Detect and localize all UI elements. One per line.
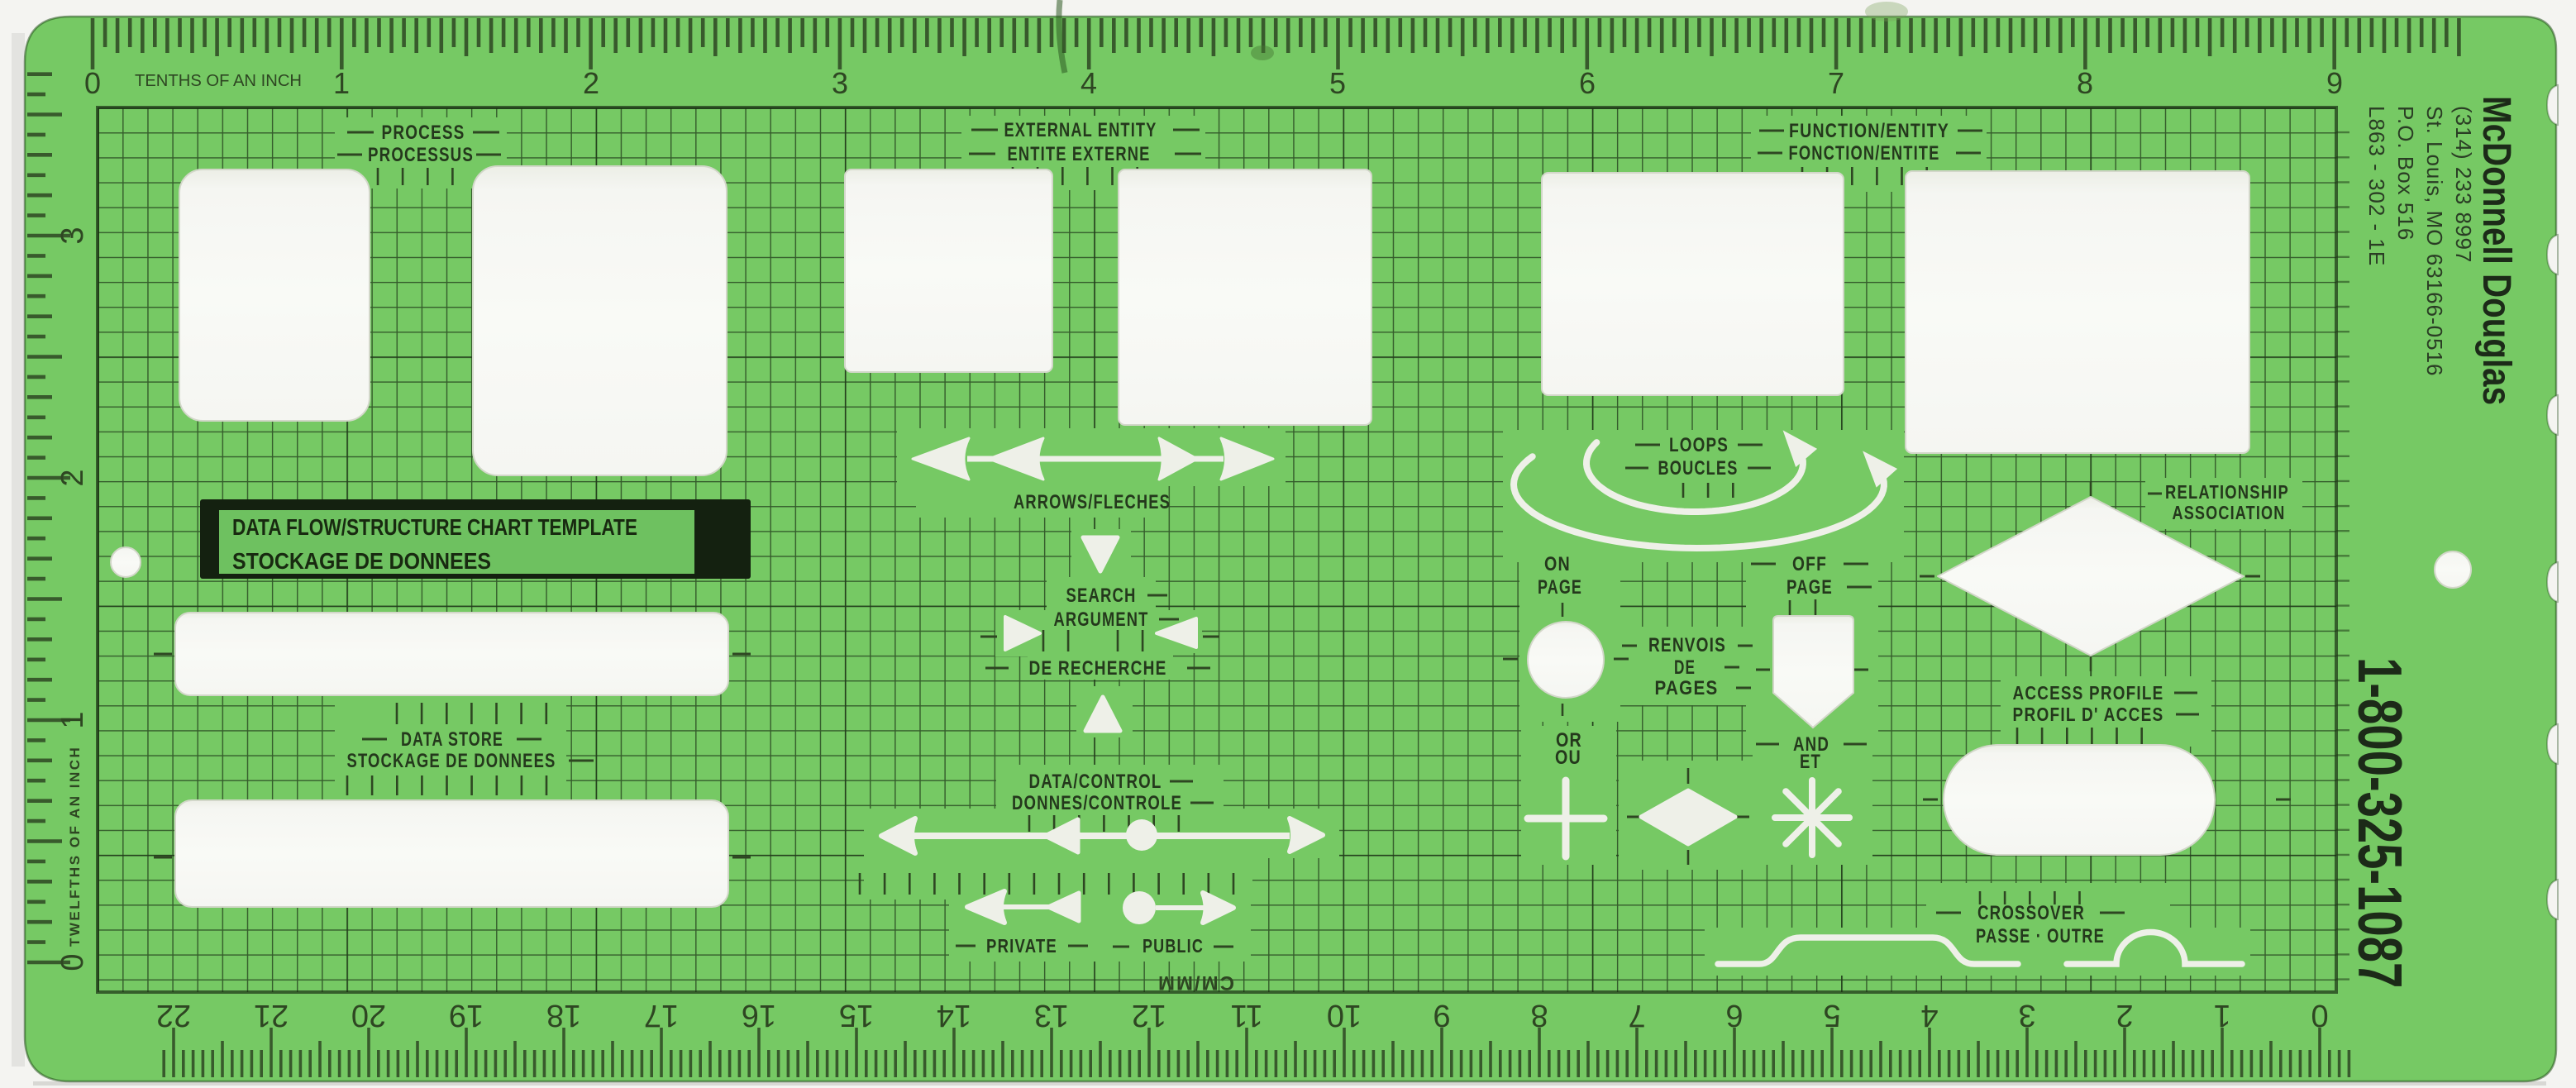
svg-text:19: 19 [449,998,484,1033]
svg-text:PROCESSUS: PROCESSUS [368,144,474,166]
svg-text:5: 5 [1823,998,1840,1033]
svg-text:FUNCTION/ENTITY: FUNCTION/ENTITY [1789,120,1949,142]
svg-text:(314) 233 8997: (314) 233 8997 [2451,106,2476,263]
svg-text:0: 0 [84,66,101,100]
svg-text:2: 2 [583,66,599,100]
svg-text:RENVOIS: RENVOIS [1648,634,1726,656]
svg-text:OFF: OFF [1792,553,1827,575]
svg-text:3: 3 [832,66,848,100]
svg-text:3: 3 [2018,998,2035,1033]
svg-text:ASSOCIATION: ASSOCIATION [2173,502,2286,523]
svg-text:6: 6 [1725,998,1743,1033]
svg-text:OU: OU [1555,747,1581,769]
svg-text:13: 13 [1034,998,1069,1033]
svg-text:St. Louis, MO 63166-0516: St. Louis, MO 63166-0516 [2422,106,2447,377]
svg-text:2: 2 [55,469,90,486]
svg-text:20: 20 [351,998,386,1033]
svg-text:ACCESS PROFILE: ACCESS PROFILE [2013,682,2164,704]
svg-text:CROSSOVER: CROSSOVER [1977,902,2085,924]
svg-text:0: 0 [2311,998,2328,1033]
svg-text:8: 8 [2077,66,2093,100]
svg-text:ARROWS/FLECHES: ARROWS/FLECHES [1014,491,1171,513]
svg-text:1-800-325-1087: 1-800-325-1087 [2345,657,2414,988]
svg-text:15: 15 [839,998,874,1033]
svg-text:6: 6 [1579,66,1596,100]
svg-text:3: 3 [55,227,90,244]
svg-text:PAGES: PAGES [1655,677,1719,699]
svg-text:2: 2 [2116,998,2133,1033]
svg-text:PRIVATE: PRIVATE [986,935,1057,957]
svg-text:LOOPS: LOOPS [1669,434,1729,456]
svg-text:7: 7 [1828,66,1844,100]
svg-text:4: 4 [1920,998,1938,1033]
svg-text:SEARCH: SEARCH [1066,585,1137,607]
svg-text:22: 22 [156,998,191,1033]
svg-text:17: 17 [644,998,679,1033]
svg-text:McDonnell Douglas: McDonnell Douglas [2474,96,2518,405]
svg-text:7: 7 [1628,998,1645,1033]
svg-text:ET: ET [1800,751,1821,773]
svg-text:14: 14 [937,998,971,1033]
svg-text:STOCKAGE DE DONNEES: STOCKAGE DE DONNEES [347,750,556,772]
svg-text:PROFIL D' ACCES: PROFIL D' ACCES [2013,704,2164,725]
svg-text:DATA FLOW/STRUCTURE CHART TEMP: DATA FLOW/STRUCTURE CHART TEMPLATE [232,514,637,540]
svg-text:DATA STORE: DATA STORE [401,728,503,751]
svg-text:PUBLIC: PUBLIC [1143,935,1204,957]
svg-text:4: 4 [1080,66,1097,100]
svg-text:PROCESS: PROCESS [382,122,465,144]
svg-text:1: 1 [2213,998,2230,1033]
svg-text:18: 18 [546,998,581,1033]
svg-text:1: 1 [55,711,90,728]
svg-text:FONCTION/ENTITE: FONCTION/ENTITE [1789,142,1940,165]
svg-text:1: 1 [333,66,350,100]
svg-text:PASSE · OUTRE: PASSE · OUTRE [1976,925,2105,947]
svg-text:ENTITE EXTERNE: ENTITE EXTERNE [1008,143,1151,165]
svg-text:STOCKAGE DE DONNEES: STOCKAGE DE DONNEES [232,548,491,574]
svg-text:12: 12 [1132,998,1166,1033]
svg-text:0: 0 [55,953,90,971]
svg-text:ARGUMENT: ARGUMENT [1054,608,1149,631]
svg-text:DE: DE [1674,656,1696,679]
svg-text:PAGE: PAGE [1787,576,1833,599]
svg-text:DONNES/CONTROLE: DONNES/CONTROLE [1012,792,1182,814]
svg-text:EXTERNAL ENTITY: EXTERNAL ENTITY [1004,119,1157,141]
svg-text:ON: ON [1544,553,1571,575]
svg-text:8: 8 [1530,998,1548,1033]
svg-text:DATA/CONTROL: DATA/CONTROL [1029,771,1162,793]
svg-text:RELATIONSHIP: RELATIONSHIP [2165,481,2289,503]
svg-text:16: 16 [742,998,776,1033]
svg-text:9: 9 [2326,66,2343,100]
svg-text:11: 11 [1230,998,1262,1033]
svg-text:CM/MM: CM/MM [1157,971,1234,994]
svg-text:TENTHS OF AN INCH: TENTHS OF AN INCH [135,72,302,90]
svg-text:L863 - 302 - 1E: L863 - 302 - 1E [2364,106,2389,266]
svg-text:10: 10 [1327,998,1362,1033]
svg-text:PAGE: PAGE [1538,576,1582,599]
svg-text:9: 9 [1433,998,1450,1033]
svg-text:BOUCLES: BOUCLES [1658,457,1739,480]
svg-text:P.O. Box 516: P.O. Box 516 [2393,106,2418,241]
svg-text:5: 5 [1329,66,1346,100]
svg-text:21: 21 [254,998,289,1033]
svg-text:DE RECHERCHE: DE RECHERCHE [1029,657,1167,680]
svg-text:TWELFTHS OF AN INCH: TWELFTHS OF AN INCH [67,746,83,947]
